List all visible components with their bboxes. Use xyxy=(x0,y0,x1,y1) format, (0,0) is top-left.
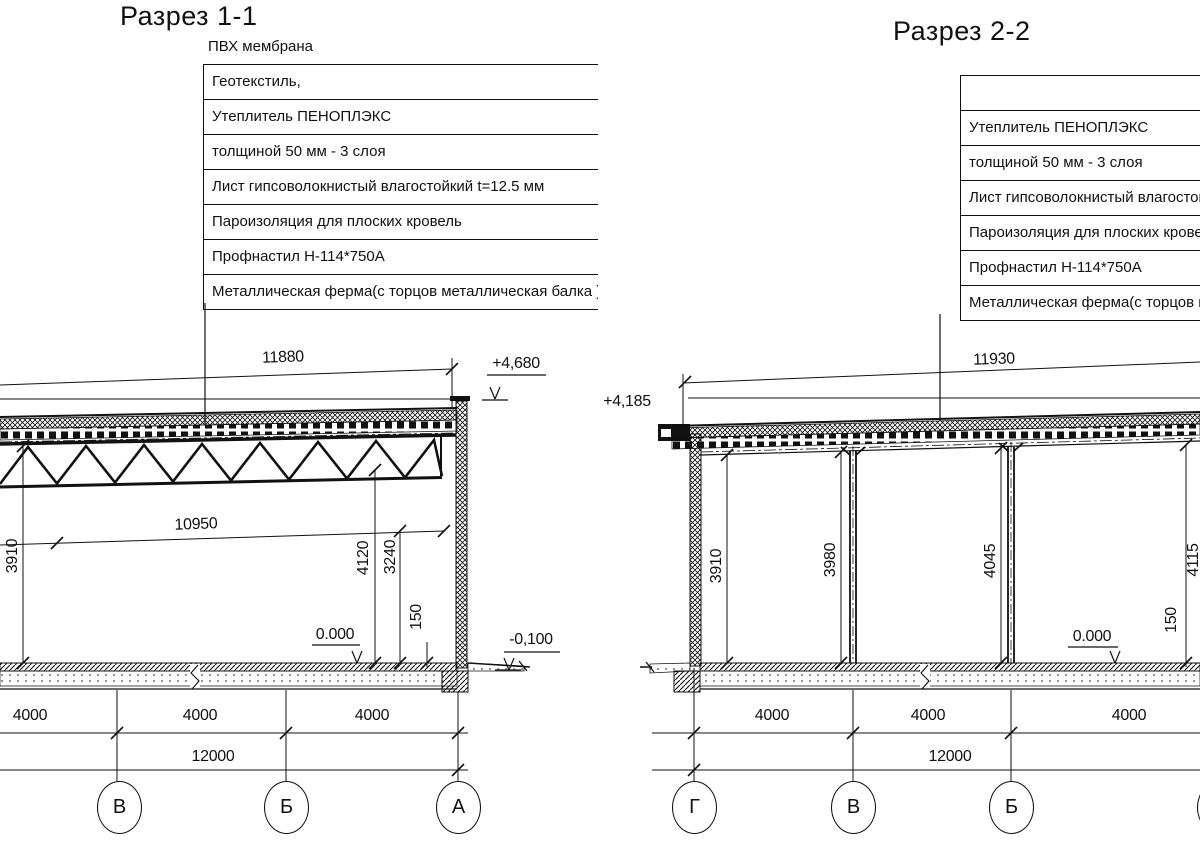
section2-floor-slab xyxy=(700,663,1200,689)
callout-row: Пароизоляция для плоских кровель xyxy=(961,215,1200,250)
section1-elev-zero-mark xyxy=(312,645,362,663)
section1-axis-bubble-v: В xyxy=(97,781,142,834)
callout-row: Металлическая ферма(с торцов металлическ… xyxy=(961,285,1200,321)
section1-dim-11880 xyxy=(0,358,458,408)
section1-roof-membrane-label: ПВХ мембрана xyxy=(208,38,313,55)
section1-grid-and-dim-rows xyxy=(0,690,468,781)
section2-vdim-150: 150 xyxy=(1163,607,1181,633)
drawing-sheet: Разрез 1-1 ПВХ мембрана Геотекстиль, Уте… xyxy=(0,0,1200,844)
section2-elev-zero-label: 0.000 xyxy=(1073,628,1112,646)
section1-callout-table: Геотекстиль, Утеплитель ПЕНОПЛЭКС толщин… xyxy=(203,64,598,310)
section2-elev-zero-mark xyxy=(1068,647,1120,663)
section2-title: Разрез 2-2 xyxy=(893,16,1031,47)
section2-roof-layers xyxy=(672,412,1200,455)
section2-axis-bubble-g: Г xyxy=(672,781,717,834)
section2-vdim-3910: 3910 xyxy=(708,549,726,583)
section2-vdim-3980: 3980 xyxy=(822,543,840,577)
section2-bay-dim: 4000 xyxy=(1112,707,1146,725)
axis-letter: В xyxy=(113,796,126,819)
callout-row: Геотекстиль, xyxy=(204,64,598,99)
section1-elev-roof-mark xyxy=(482,375,546,400)
section1-bay-dim: 4000 xyxy=(183,707,217,725)
section1-axis-bubble-b: Б xyxy=(264,781,309,834)
axis-letter: А xyxy=(452,796,465,819)
callout-row: Лист гипсоволокнистый влагостойкий t=12.… xyxy=(961,180,1200,215)
section2-axis-bubble-v: В xyxy=(831,781,876,834)
callout-row: толщиной 50 мм - 3 слоя xyxy=(961,145,1200,180)
section1-dim-top-label: 11880 xyxy=(262,348,304,367)
section1-bay-dim: 4000 xyxy=(13,707,47,725)
section1-right-wall xyxy=(450,396,470,668)
section2-bay-dim: 4000 xyxy=(755,707,789,725)
section2-total-dim: 12000 xyxy=(929,748,972,766)
section1-vdim-3910: 3910 xyxy=(4,539,22,573)
callout-row xyxy=(961,75,1200,110)
callout-row: Пароизоляция для плоских кровель xyxy=(204,204,598,239)
section1-elev-ground-label: -0,100 xyxy=(509,631,553,649)
section2-elev-roof-label: +4,185 xyxy=(603,393,651,411)
section1-axis-bubble-a: А xyxy=(436,781,481,834)
section1-dim-truss-label: 10950 xyxy=(174,515,218,534)
callout-row: Лист гипсоволокнистый влагостойкий t=12.… xyxy=(204,169,598,204)
section1-elev-zero-label: 0.000 xyxy=(316,626,355,644)
callout-row: Профнастил Н-114*750А xyxy=(961,250,1200,285)
section2-column-2 xyxy=(999,442,1023,663)
section2-bay-dim: 4000 xyxy=(911,707,945,725)
callout-row: Утеплитель ПЕНОПЛЭКС xyxy=(204,99,598,134)
section1-title: Разрез 1-1 xyxy=(120,1,258,32)
axis-letter: Г xyxy=(689,796,700,819)
axis-letter: В xyxy=(847,796,860,819)
section1-truss xyxy=(0,435,456,487)
section1-elev-roof-label: +4,680 xyxy=(492,355,540,373)
callout-row: Профнастил Н-114*750А xyxy=(204,239,598,274)
callout-row: Утеплитель ПЕНОПЛЭКС xyxy=(961,110,1200,145)
section2-vdim-4115: 4115 xyxy=(1185,543,1200,576)
section1-floor-slab xyxy=(0,663,457,689)
section1-vdim-3240: 3240 xyxy=(382,540,400,574)
section2-vdim-4045: 4045 xyxy=(982,544,1000,578)
axis-letter: Б xyxy=(1005,796,1018,819)
section2-vertical-dims xyxy=(721,439,1192,669)
callout-row: толщиной 50 мм - 3 слоя xyxy=(204,134,598,169)
section2-callout-table: Утеплитель ПЕНОПЛЭКС толщиной 50 мм - 3 … xyxy=(960,75,1200,321)
section2-column-1 xyxy=(841,446,865,663)
axis-letter: Б xyxy=(280,796,293,819)
section2-left-wall xyxy=(690,434,701,666)
callout-row: Металлическая ферма(с торцов металлическ… xyxy=(204,274,598,310)
section1-vdim-150: 150 xyxy=(408,604,426,630)
section2-axis-bubble-b: Б xyxy=(989,781,1034,834)
section2-dim-top-label: 11930 xyxy=(973,350,1015,369)
section1-drawing xyxy=(0,303,560,781)
section1-total-dim: 12000 xyxy=(192,748,235,766)
section1-bay-dim: 4000 xyxy=(355,707,389,725)
section1-vdim-4120: 4120 xyxy=(355,541,373,575)
